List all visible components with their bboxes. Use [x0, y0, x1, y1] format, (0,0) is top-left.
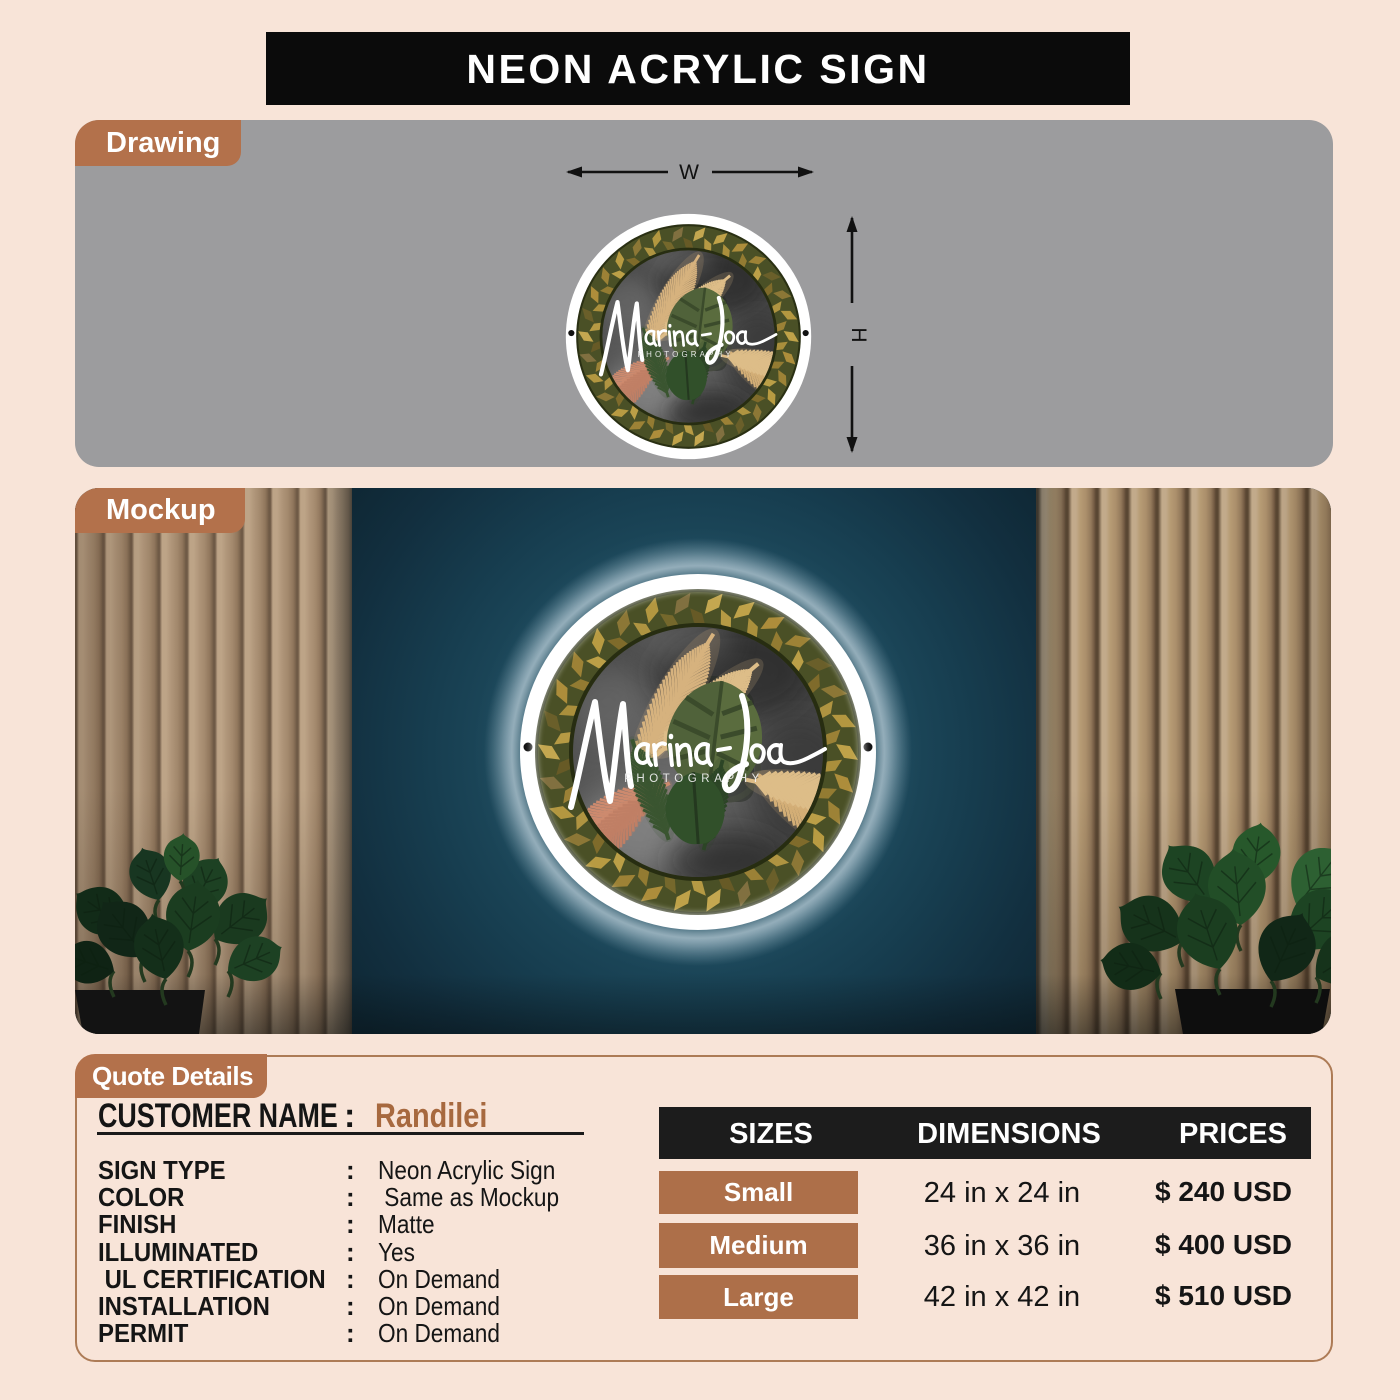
svg-text:W: W: [679, 161, 699, 184]
svg-text:H: H: [847, 327, 868, 342]
